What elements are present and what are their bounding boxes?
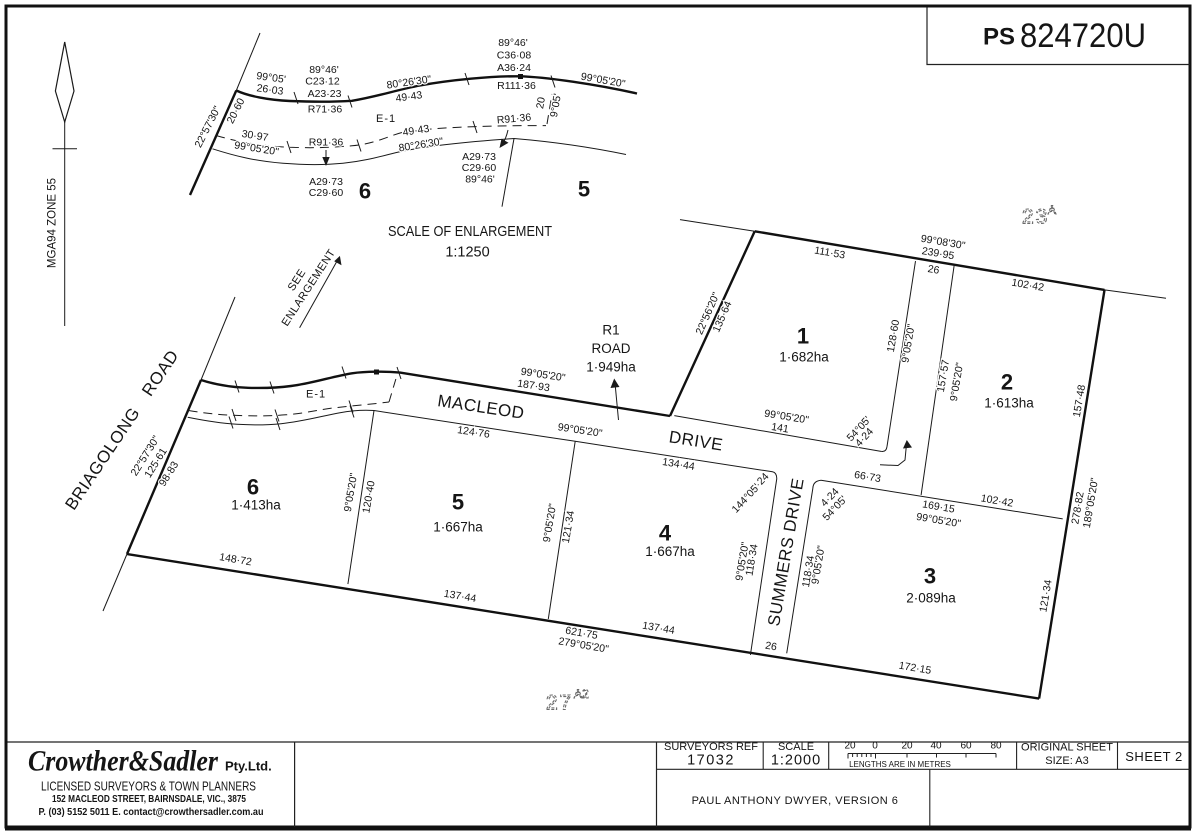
svg-text:R91·36: R91·36 [309,137,344,149]
svg-text:E-1: E-1 [306,389,326,401]
svg-text:LICENSED SURVEYORS & TOWN PLAN: LICENSED SURVEYORS & TOWN PLANNERS [41,779,256,794]
svg-text:1:2000: 1:2000 [771,753,821,769]
svg-text:1·682ha: 1·682ha [779,350,829,365]
svg-text:C36·08: C36·08 [497,50,532,62]
svg-text:1: 1 [797,324,809,349]
svg-text:40: 40 [930,741,942,752]
svg-text:Pty.Ltd.: Pty.Ltd. [225,759,272,774]
svg-text:27: 27 [546,692,573,715]
svg-text:89°46': 89°46' [309,64,339,76]
svg-text:P. (03) 5152 5011 E. contact@c: P. (03) 5152 5011 E. contact@crowthersad… [39,806,264,818]
svg-text:89°46': 89°46' [498,37,528,49]
svg-text:C29·60: C29·60 [462,162,497,174]
svg-text:17032: 17032 [687,753,735,769]
svg-text:A36·24: A36·24 [497,62,531,74]
svg-text:E-1: E-1 [376,113,396,125]
svg-text:6: 6 [359,179,371,204]
svg-text:R111·36: R111·36 [497,80,536,92]
svg-text:Crowther&Sadler: Crowther&Sadler [28,745,218,778]
svg-text:4: 4 [659,521,672,546]
svg-text:20: 20 [901,741,913,752]
svg-text:1·667ha: 1·667ha [433,520,483,535]
svg-text:0: 0 [872,741,878,752]
svg-text:20: 20 [534,96,548,110]
svg-text:26: 26 [764,640,778,654]
svg-text:2: 2 [1001,370,1013,395]
svg-text:SCALE OF ENLARGEMENT: SCALE OF ENLARGEMENT [388,223,552,240]
svg-text:824720U: 824720U [1020,17,1146,55]
svg-text:R71·36: R71·36 [308,104,343,116]
svg-text:26: 26 [927,263,941,277]
svg-text:A29·73: A29·73 [309,176,343,188]
svg-text:1·667ha: 1·667ha [645,544,695,559]
svg-text:ORIGINAL SHEET: ORIGINAL SHEET [1021,742,1113,754]
svg-text:5: 5 [452,490,464,515]
svg-text:MGA94 ZONE 55: MGA94 ZONE 55 [47,178,59,268]
svg-text:SCALE: SCALE [778,741,814,753]
svg-text:5: 5 [578,177,590,202]
svg-text:1·613ha: 1·613ha [984,396,1034,411]
svg-text:LENGTHS ARE IN METRES: LENGTHS ARE IN METRES [849,760,951,769]
svg-text:1·949ha: 1·949ha [586,360,636,375]
svg-text:6: 6 [247,475,259,500]
svg-text:A2: A2 [574,687,589,701]
svg-text:20: 20 [844,741,856,752]
svg-text:60: 60 [960,741,972,752]
svg-text:23: 23 [1022,206,1049,229]
svg-text:PAUL ANTHONY DWYER, VERSION: PAUL ANTHONY DWYER, VERSION 6 [692,795,899,807]
svg-text:PS: PS [983,24,1015,51]
svg-text:R1: R1 [602,323,619,338]
svg-text:SIZE: A3: SIZE: A3 [1045,755,1088,767]
svg-text:2·089ha: 2·089ha [906,591,956,606]
svg-text:SURVEYORS REF: SURVEYORS REF [664,741,758,753]
svg-text:152 MACLEOD STREET, BAIRNSDALE: 152 MACLEOD STREET, BAIRNSDALE, VIC., 38… [52,794,246,805]
svg-text:ROAD: ROAD [591,341,630,356]
svg-text:A23·23: A23·23 [308,88,342,100]
svg-text:1:1250: 1:1250 [445,245,489,261]
svg-text:80: 80 [990,741,1002,752]
svg-text:SHEET 2: SHEET 2 [1125,749,1182,764]
svg-text:1·413ha: 1·413ha [231,498,281,513]
svg-text:3: 3 [924,564,936,589]
svg-text:89°46': 89°46' [465,174,495,186]
svg-text:C29·60: C29·60 [309,187,344,199]
svg-text:A: A [1048,203,1056,217]
svg-text:C23·12: C23·12 [305,76,340,88]
